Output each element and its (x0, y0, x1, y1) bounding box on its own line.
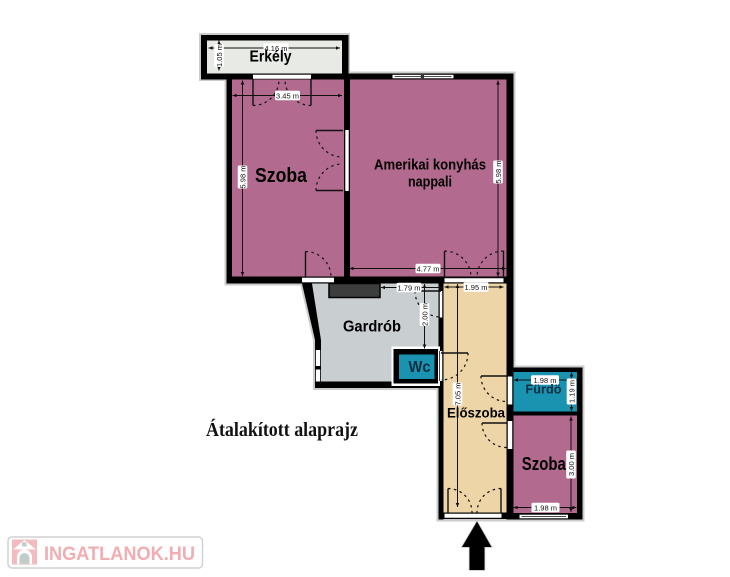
svg-text:1.95 m: 1.95 m (465, 283, 488, 292)
svg-text:Fürdö: Fürdö (526, 383, 562, 397)
svg-text:1.79 m: 1.79 m (398, 283, 421, 292)
svg-text:Amerikai konyhás: Amerikai konyhás (374, 158, 486, 174)
svg-text:1.98 m: 1.98 m (534, 503, 557, 512)
svg-text:Szoba: Szoba (522, 453, 567, 474)
svg-text:Előszoba: Előszoba (447, 405, 505, 421)
svg-text:INGATLANOK.HU: INGATLANOK.HU (44, 544, 195, 565)
svg-text:2.00 m: 2.00 m (420, 303, 429, 326)
svg-text:1.19 m: 1.19 m (567, 380, 576, 403)
svg-text:5.98 m: 5.98 m (238, 166, 247, 189)
svg-text:Szoba: Szoba (255, 164, 308, 187)
svg-text:5.98 m: 5.98 m (494, 161, 503, 184)
svg-text:nappali: nappali (408, 175, 452, 191)
svg-text:1.05 m: 1.05 m (215, 44, 224, 67)
svg-text:3.00 m: 3.00 m (567, 453, 576, 476)
svg-text:Wc: Wc (409, 359, 431, 376)
svg-text:Átalakított alaprajz: Átalakított alaprajz (206, 418, 358, 441)
svg-text:Erkély: Erkély (250, 49, 292, 66)
svg-text:4.77 m: 4.77 m (417, 264, 440, 273)
svg-text:3.45 m: 3.45 m (276, 91, 299, 100)
svg-text:Gardrób: Gardrób (343, 319, 401, 336)
svg-text:7.05 m: 7.05 m (453, 383, 462, 406)
